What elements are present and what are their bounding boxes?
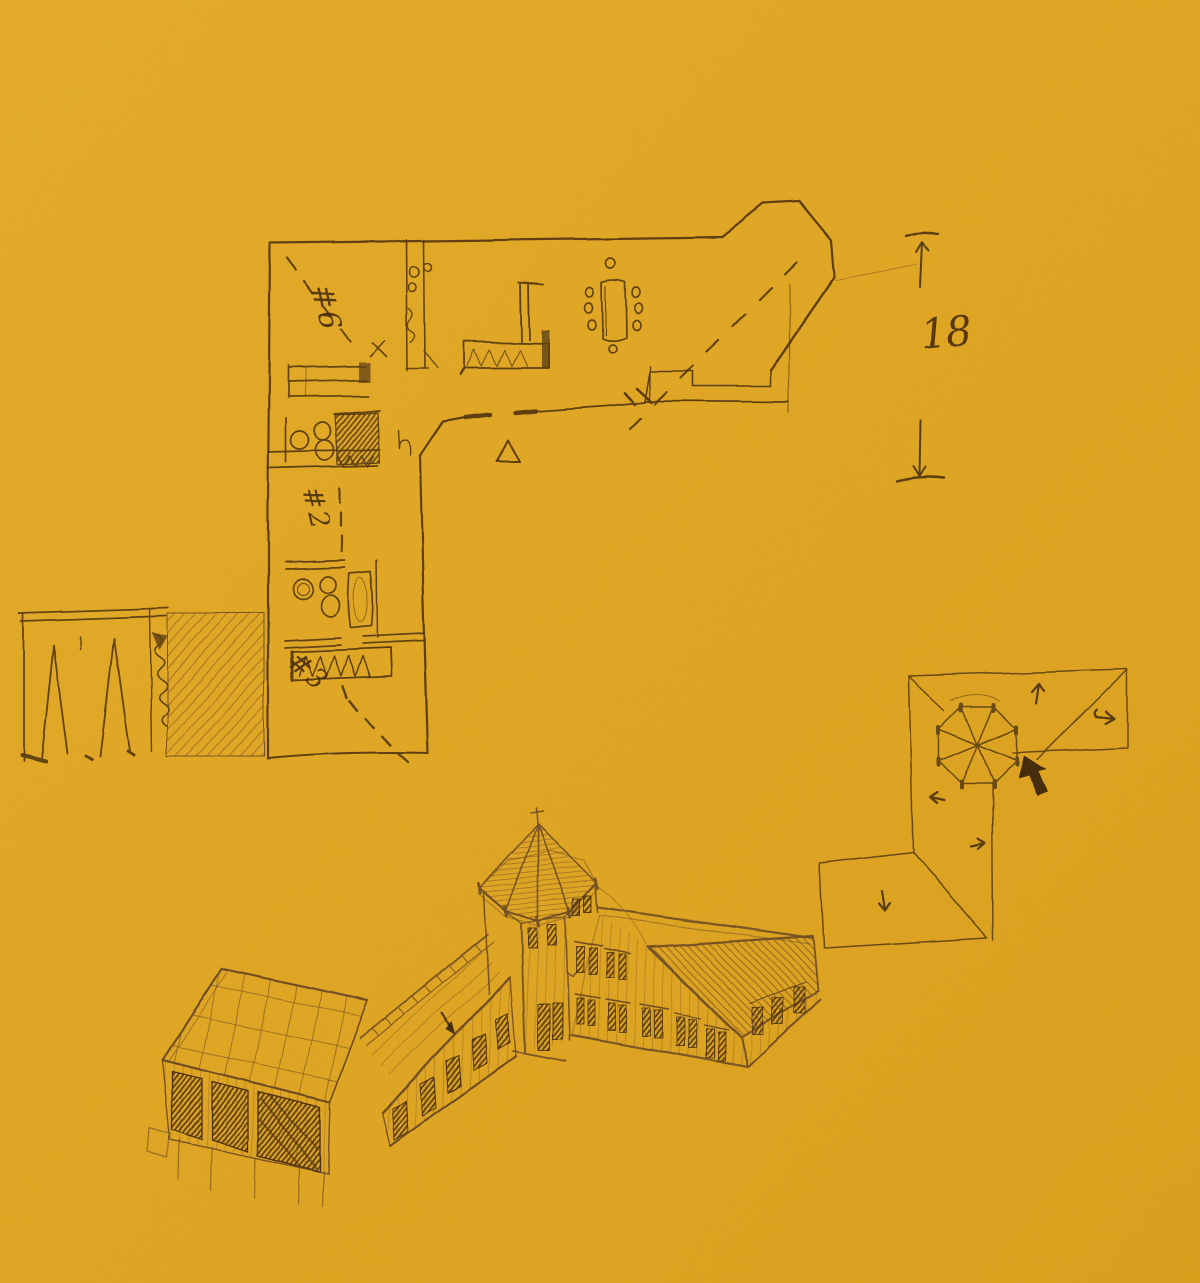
hatched-court — [167, 613, 264, 756]
sketch-canvas: #6 #2 #3 18 — [0, 0, 1200, 1283]
sketch-page: #6 #2 #3 18 — [0, 0, 1200, 1283]
dimension-value: 18 — [918, 307, 973, 358]
